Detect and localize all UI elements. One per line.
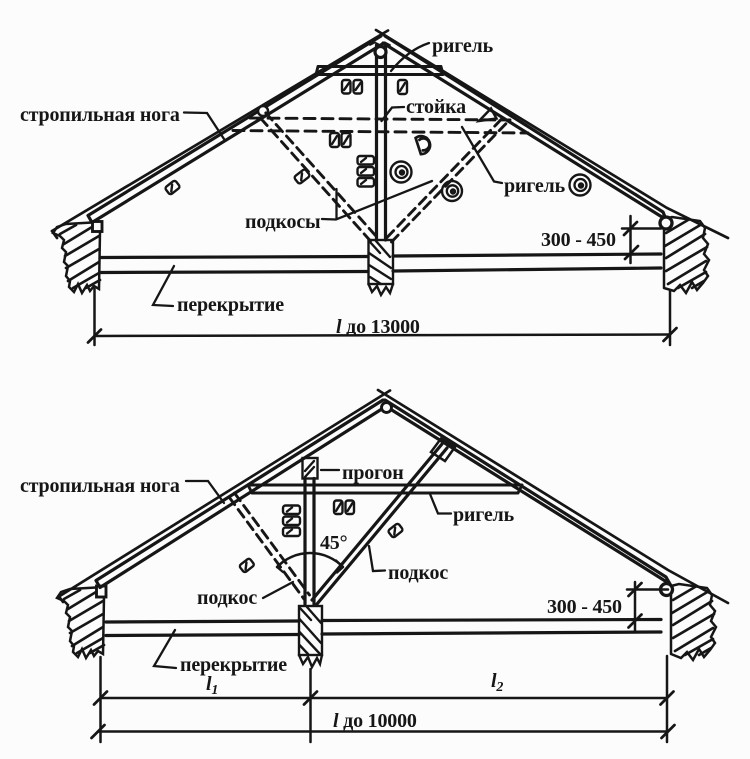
svg-text:подкос: подкос [197, 587, 257, 609]
svg-text:ригель: ригель [453, 504, 515, 526]
svg-text:прогон: прогон [342, 462, 404, 484]
svg-text:300 - 450: 300 - 450 [547, 596, 622, 618]
svg-text:45°: 45° [320, 532, 348, 554]
svg-text:стойка: стойка [406, 96, 466, 118]
svg-text:перекрытие: перекрытие [180, 654, 287, 676]
svg-text:стропильная нога: стропильная нога [20, 104, 180, 126]
svg-text:l до 13000: l до 13000 [336, 316, 420, 338]
svg-text:подкос: подкос [388, 562, 448, 584]
svg-text:300 - 450: 300 - 450 [541, 229, 616, 251]
svg-text:ригель: ригель [432, 35, 494, 57]
svg-text:перекрытие: перекрытие [177, 294, 284, 316]
svg-text:подкосы: подкосы [245, 211, 321, 233]
svg-text:ригель: ригель [504, 175, 566, 197]
svg-text:l до 10000: l до 10000 [333, 710, 417, 732]
svg-text:стропильная нога: стропильная нога [20, 475, 180, 497]
